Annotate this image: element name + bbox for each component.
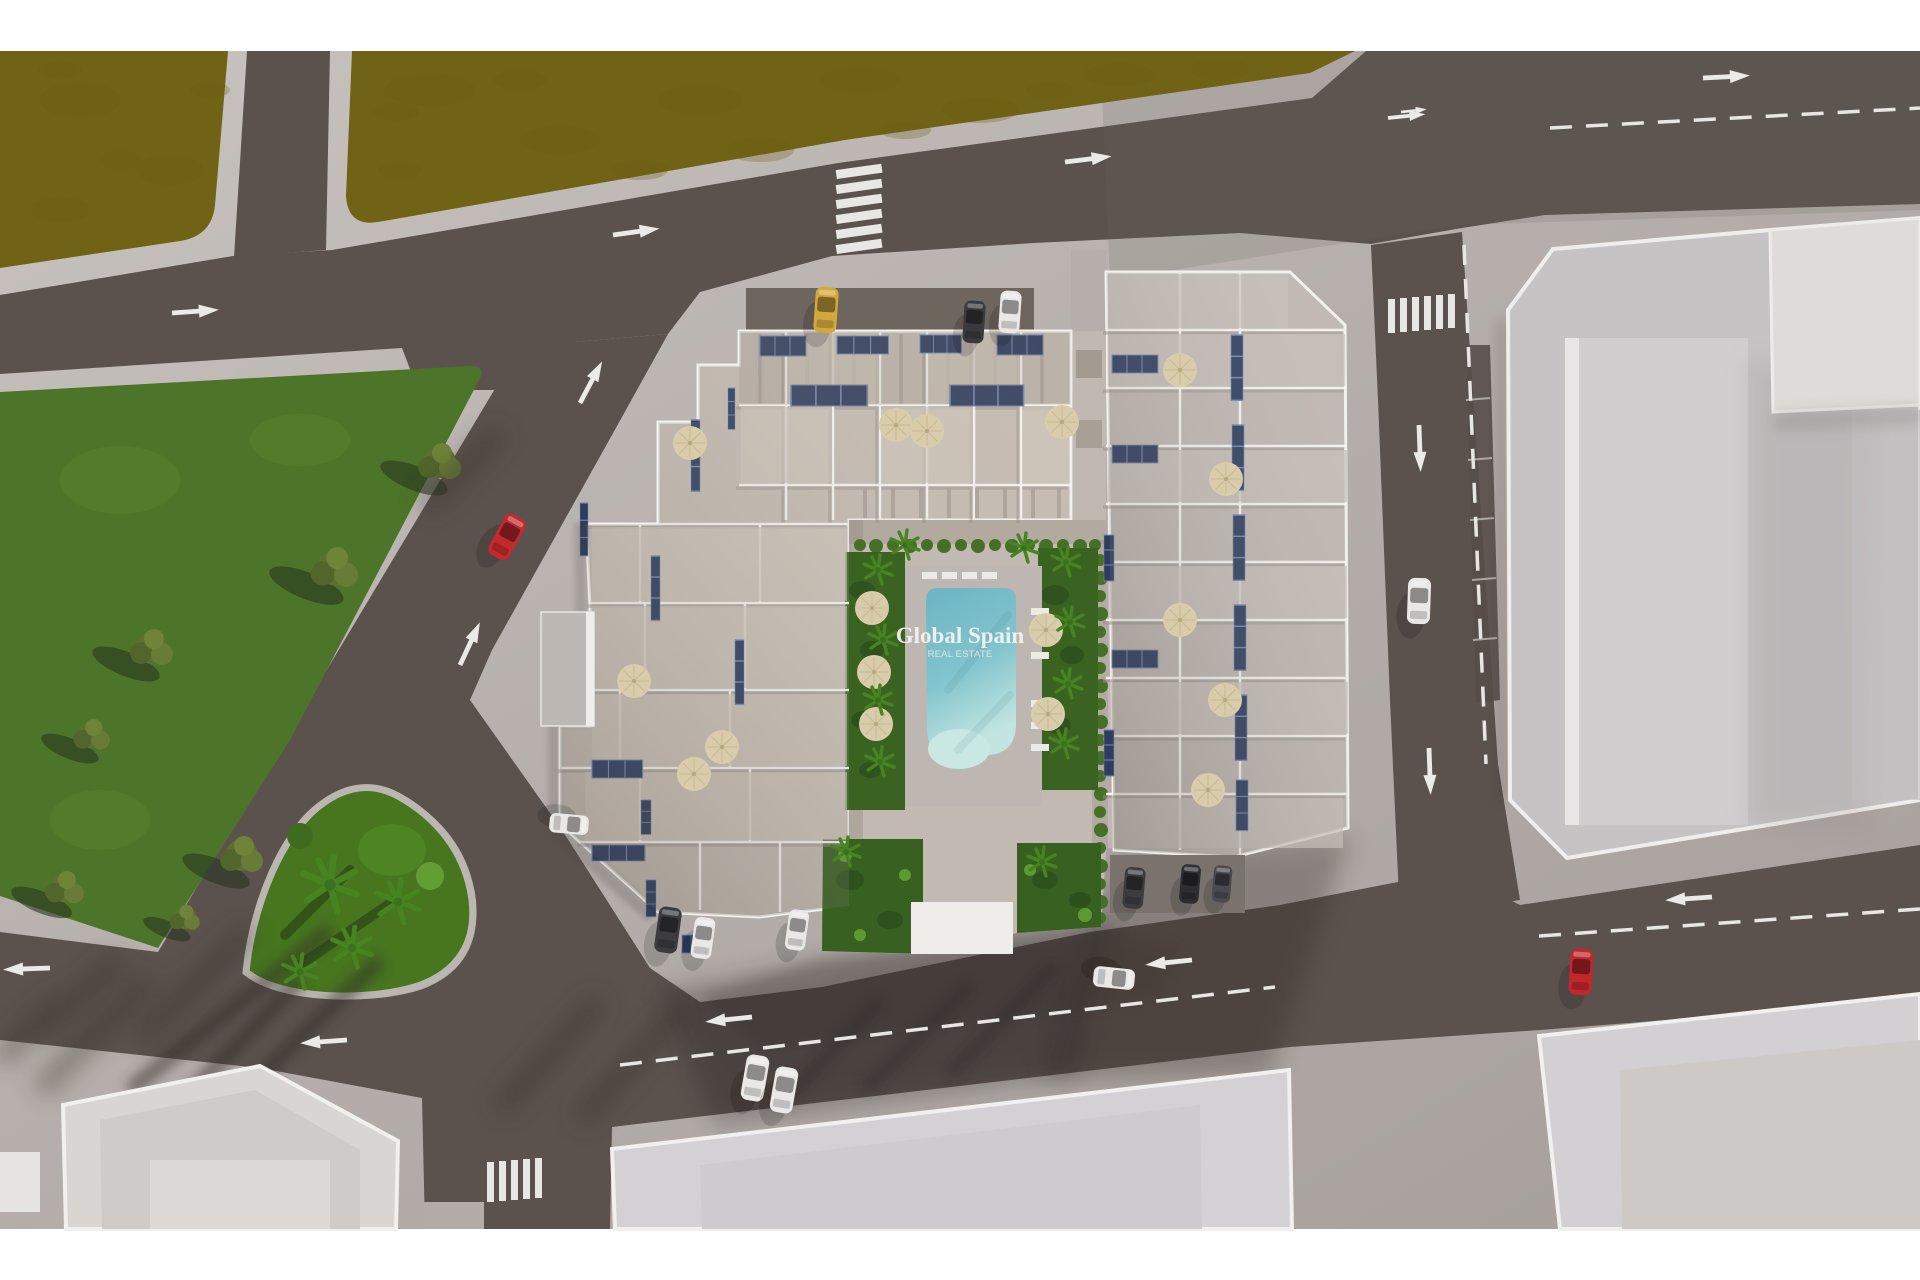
svg-text:Global Spain: Global Spain bbox=[896, 623, 1025, 648]
svg-text:REAL ESTATE: REAL ESTATE bbox=[928, 649, 993, 660]
